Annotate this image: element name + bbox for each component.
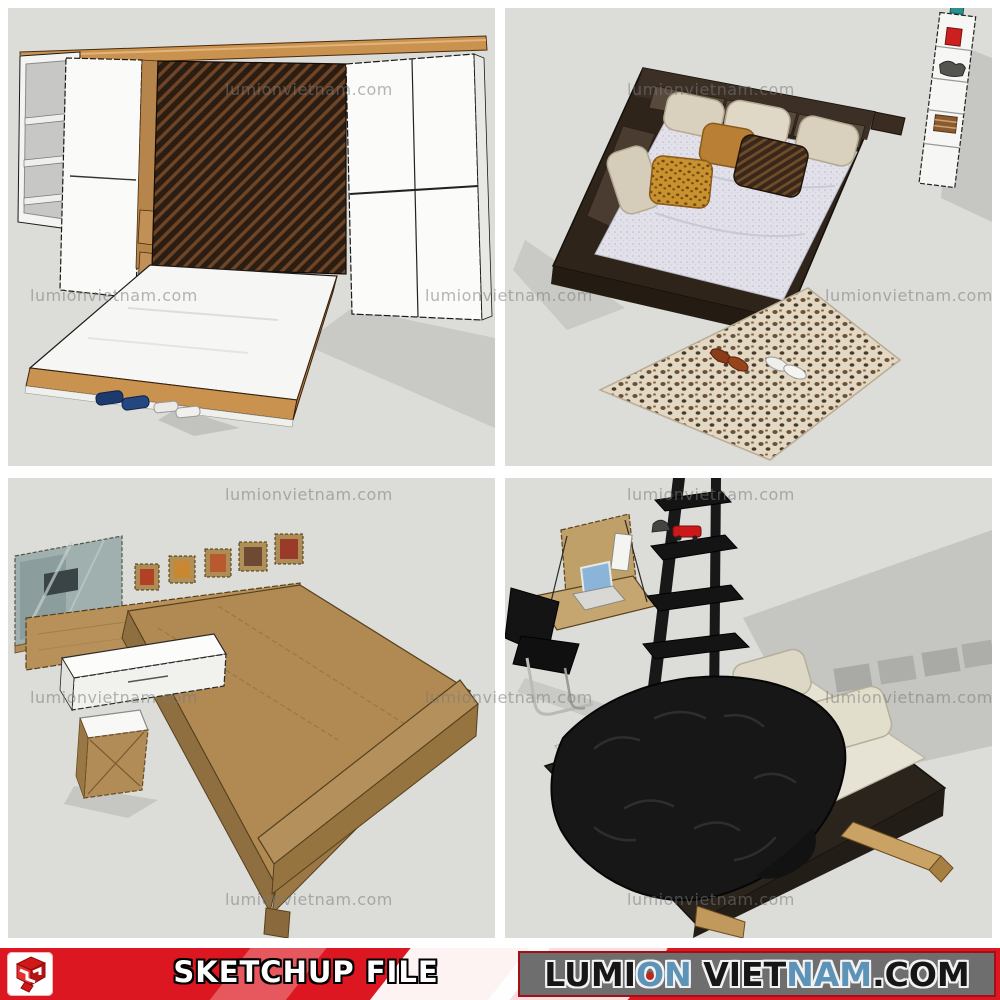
- sketchup-logo-icon: [7, 952, 53, 996]
- stool: [64, 710, 158, 818]
- panel-pallet-bed-desk: [505, 478, 992, 938]
- sketchup-file-label: SKETCHUP FILE: [138, 955, 474, 989]
- panel-oak-bed-vanity: [8, 478, 495, 938]
- photo-frames: [135, 534, 303, 590]
- books-stack-icon: [934, 115, 958, 134]
- toy-car-icon: [673, 526, 701, 537]
- site-text-segment: NAM: [786, 958, 872, 991]
- floor-shadow: [303, 308, 495, 428]
- panel-wall-bed-wardrobe: [8, 8, 495, 466]
- site-banner: LUMI O N VIET NAM .COM: [518, 951, 996, 997]
- right-wardrobe: [346, 54, 492, 320]
- left-wardrobe-door: [60, 58, 142, 298]
- panel-platform-bed-rug: [505, 8, 992, 466]
- site-text-segment: LUMI: [544, 958, 636, 991]
- site-text-segment: VIET: [692, 958, 786, 991]
- footer-banner: SKETCHUP FILE LUMI O N VIET NAM .COM: [0, 948, 1000, 1000]
- striped-back-panel: [152, 61, 346, 274]
- pallet-bed-scene: [505, 478, 992, 938]
- teal-lamp-icon: [950, 8, 964, 14]
- mini-motorbike-icon: [652, 520, 670, 532]
- site-text-segment-o: O: [636, 958, 664, 991]
- magazine: [611, 533, 632, 571]
- oak-bed-scene: [8, 478, 495, 938]
- wall-bed-scene: [8, 8, 495, 466]
- sketchup-model-collage: SKETCHUP FILE LUMI O N VIET NAM .COM lum…: [0, 0, 1000, 1000]
- platform-bed-scene: [505, 8, 992, 466]
- site-text-segment: N: [664, 958, 692, 991]
- site-text-segment: .COM: [872, 958, 970, 991]
- red-box-icon: [945, 27, 962, 46]
